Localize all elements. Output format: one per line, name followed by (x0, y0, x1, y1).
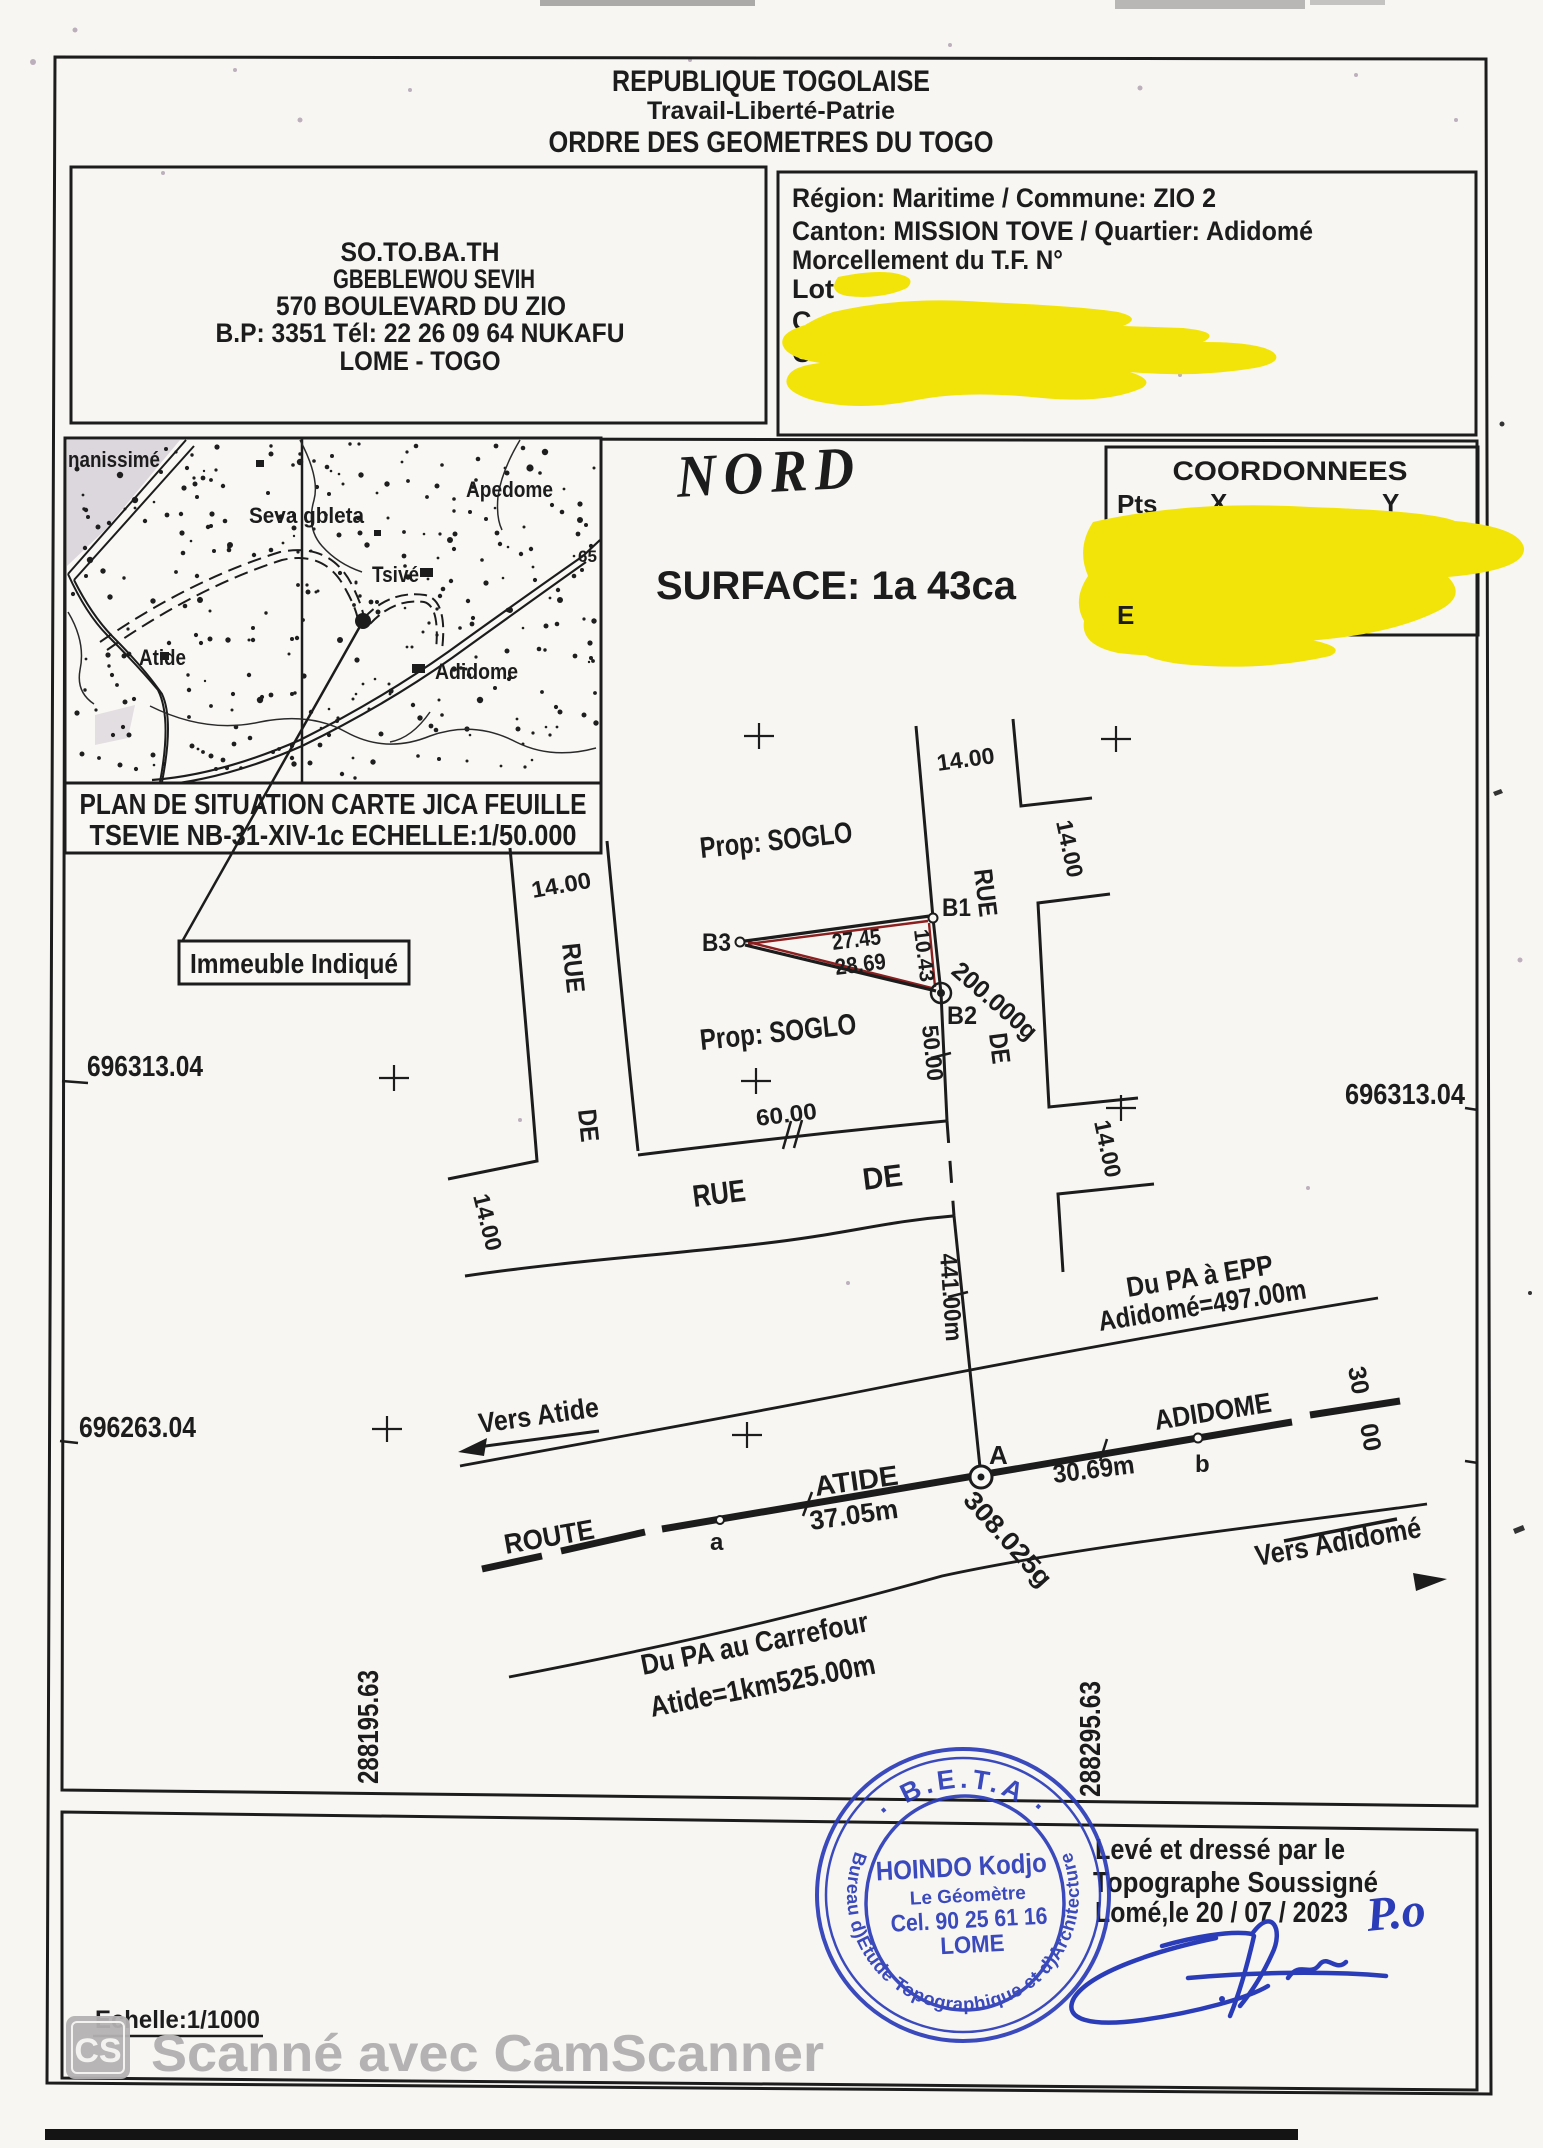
svg-text:DE: DE (861, 1157, 905, 1197)
svg-text:Scanné avec CamScanner: Scanné avec CamScanner (151, 2025, 824, 2083)
svg-text:TSEVIE NB-31-XIV-1c ECHELLE:1/: TSEVIE NB-31-XIV-1c ECHELLE:1/50.000 (90, 820, 577, 852)
svg-text:00: 00 (1354, 1421, 1386, 1453)
svg-text:B2: B2 (947, 1002, 977, 1030)
svg-text:B3: B3 (702, 929, 731, 957)
svg-text:Topographe Soussigné: Topographe Soussigné (1093, 1867, 1378, 1899)
svg-text:a: a (710, 1529, 724, 1556)
svg-text:RUE: RUE (556, 941, 591, 994)
svg-text:SO.TO.BA.TH: SO.TO.BA.TH (341, 237, 500, 267)
svg-text:LOME - TOGO: LOME - TOGO (340, 346, 501, 376)
svg-text:570 BOULEVARD DU ZIO: 570 BOULEVARD DU ZIO (276, 291, 566, 321)
svg-text:RUE: RUE (968, 867, 1004, 918)
svg-text:Adidome: Adidome (435, 659, 518, 684)
svg-text:RUE: RUE (691, 1173, 748, 1214)
svg-text:Morcellement du T.F. N°: Morcellement du T.F. N° (792, 245, 1063, 275)
svg-text:nanissimé: nanissimé (68, 447, 160, 472)
svg-text:Apedome: Apedome (466, 477, 553, 502)
svg-text:COORDONNEES: COORDONNEES (1173, 456, 1408, 486)
svg-text:Levé et dressé par le: Levé et dressé par le (1095, 1834, 1345, 1866)
svg-text:Seva gbleta: Seva gbleta (249, 503, 364, 528)
svg-text:A: A (989, 1440, 1008, 1470)
svg-text:DE: DE (572, 1107, 605, 1143)
svg-text:P.o: P.o (1363, 1883, 1428, 1942)
svg-text:NORD: NORD (674, 434, 863, 510)
svg-text:DE: DE (983, 1031, 1017, 1065)
svg-text:Tsivé: Tsivé (372, 562, 419, 587)
svg-text:GBEBLEWOU SEVIH: GBEBLEWOU SEVIH (333, 264, 535, 294)
svg-text:LOME: LOME (940, 1930, 1005, 1960)
svg-text:PLAN DE SITUATION CARTE JICA F: PLAN DE SITUATION CARTE JICA FEUILLE (80, 789, 587, 821)
svg-text:ORDRE DES GEOMETRES DU TOGO: ORDRE DES GEOMETRES DU TOGO (549, 126, 994, 159)
svg-text:Immeuble Indiqué: Immeuble Indiqué (190, 948, 398, 979)
svg-text:SURFACE: 1a 43ca: SURFACE: 1a 43ca (656, 564, 1017, 608)
svg-text:696313.04: 696313.04 (1345, 1079, 1465, 1111)
svg-text:288295.63: 288295.63 (1075, 1681, 1107, 1797)
svg-text:Atide: Atide (139, 645, 186, 670)
svg-text:Travail-Liberté-Patrie: Travail-Liberté-Patrie (647, 97, 895, 125)
svg-text:696313.04: 696313.04 (87, 1051, 203, 1083)
svg-text:Canton: MISSION TOVE / Quarti: Canton: MISSION TOVE / Quartier: Adidomé (792, 216, 1313, 246)
svg-text:696263.04: 696263.04 (79, 1412, 196, 1444)
svg-text:B.P: 3351 Tél: 22 26 09 64 NUK: B.P: 3351 Tél: 22 26 09 64 NUKAFU (216, 318, 625, 348)
svg-text:Lomé,le 20 / 07 / 2023: Lomé,le 20 / 07 / 2023 (1095, 1897, 1348, 1929)
svg-text:288195.63: 288195.63 (353, 1670, 385, 1784)
svg-text:b: b (1195, 1451, 1210, 1478)
svg-text:CS: CS (74, 2032, 121, 2070)
svg-text:Région: Maritime / Commune: ZI: Région: Maritime / Commune: ZIO 2 (792, 183, 1216, 213)
svg-text:E: E (1117, 600, 1134, 630)
svg-text:30: 30 (1342, 1364, 1374, 1396)
svg-text:Lot: Lot (792, 274, 834, 304)
svg-text:65: 65 (578, 547, 597, 566)
svg-text:B1: B1 (942, 894, 971, 922)
svg-text:REPUBLIQUE TOGOLAISE: REPUBLIQUE TOGOLAISE (612, 65, 930, 98)
